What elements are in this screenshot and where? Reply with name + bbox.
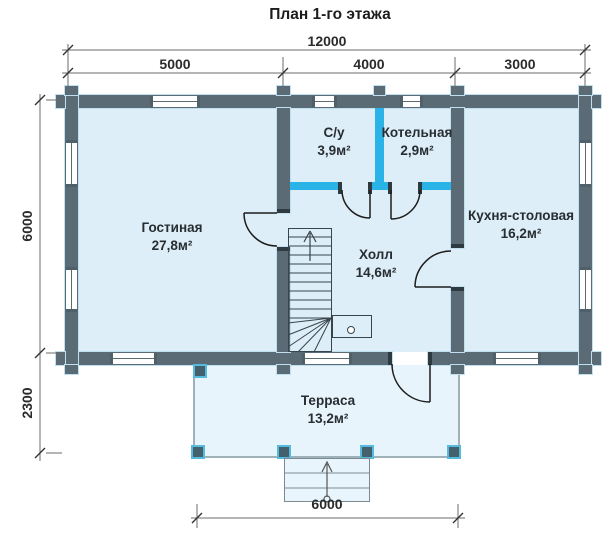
room-label-hall: Холл 14,6м² [326,246,426,281]
dim-terrace-depth: 2300 [19,363,35,443]
room-area: 16,2м² [456,225,586,243]
door-living [244,213,277,246]
dim-segment-4000: 4000 [329,56,409,72]
room-name: Холл [326,246,426,264]
door-boiler [391,190,420,219]
door-terrace [392,364,430,402]
room-area: 14,6м² [326,264,426,282]
room-label-living: Гостиная 27,8м² [97,219,247,254]
room-name: Котельная [357,124,477,142]
floor-plan: План 1-го этажа [0,0,609,548]
dim-house-depth: 6000 [19,186,35,266]
plan-title: План 1-го этажа [215,6,445,24]
room-area: 2,9м² [357,142,477,160]
dim-segment-3000: 3000 [480,56,560,72]
room-label-kitchen: Кухня-столовая 16,2м² [456,207,586,242]
room-label-terrace: Терраса 13,2м² [268,392,388,427]
doors [244,190,451,402]
stair-winders [288,318,331,352]
dim-terrace-width: 6000 [287,496,367,512]
dimension-lines [40,44,591,528]
door-bathroom [342,190,370,218]
room-name: Кухня-столовая [456,207,586,225]
room-area: 13,2м² [268,410,388,428]
room-name: Терраса [268,392,388,410]
dim-segment-5000: 5000 [135,56,215,72]
room-name: Гостиная [97,219,247,237]
plan-linework [0,0,609,548]
dimension-ticks [35,45,590,523]
room-label-boiler: Котельная 2,9м² [357,124,477,159]
dim-total-width: 12000 [287,33,367,49]
room-area: 27,8м² [97,237,247,255]
